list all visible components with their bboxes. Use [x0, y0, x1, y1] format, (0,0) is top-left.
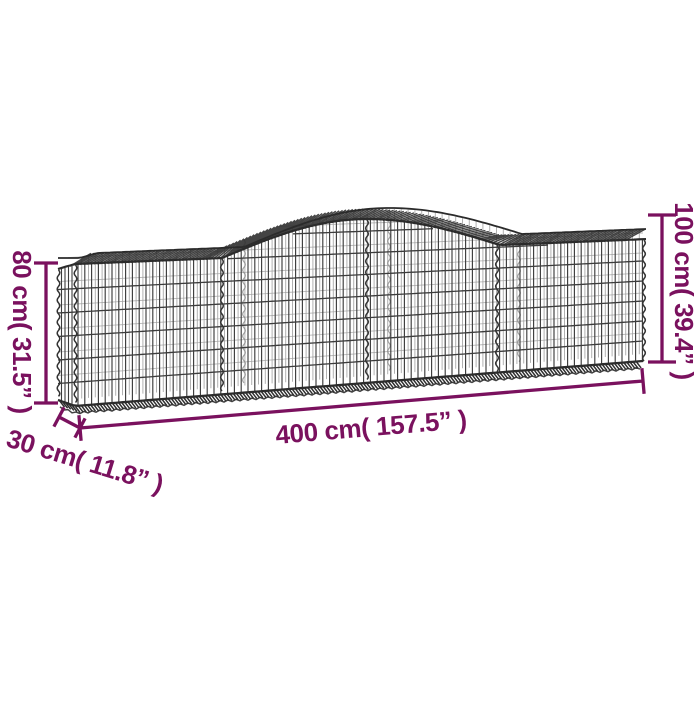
- dimension-lines: [34, 215, 676, 441]
- diagram-canvas: 80 cm( 31.5” ) 100 cm( 39.4” ) 400 cm( 1…: [0, 0, 700, 700]
- height-right-label: 100 cm( 39.4” ): [669, 202, 699, 380]
- height-left-label: 80 cm( 31.5” ): [7, 250, 37, 414]
- product-dimension-diagram: 80 cm( 31.5” ) 100 cm( 39.4” ) 400 cm( 1…: [0, 0, 700, 700]
- depth-label: 30 cm( 11.8” ): [3, 423, 167, 499]
- gabion-basket-illustration: [57, 208, 646, 414]
